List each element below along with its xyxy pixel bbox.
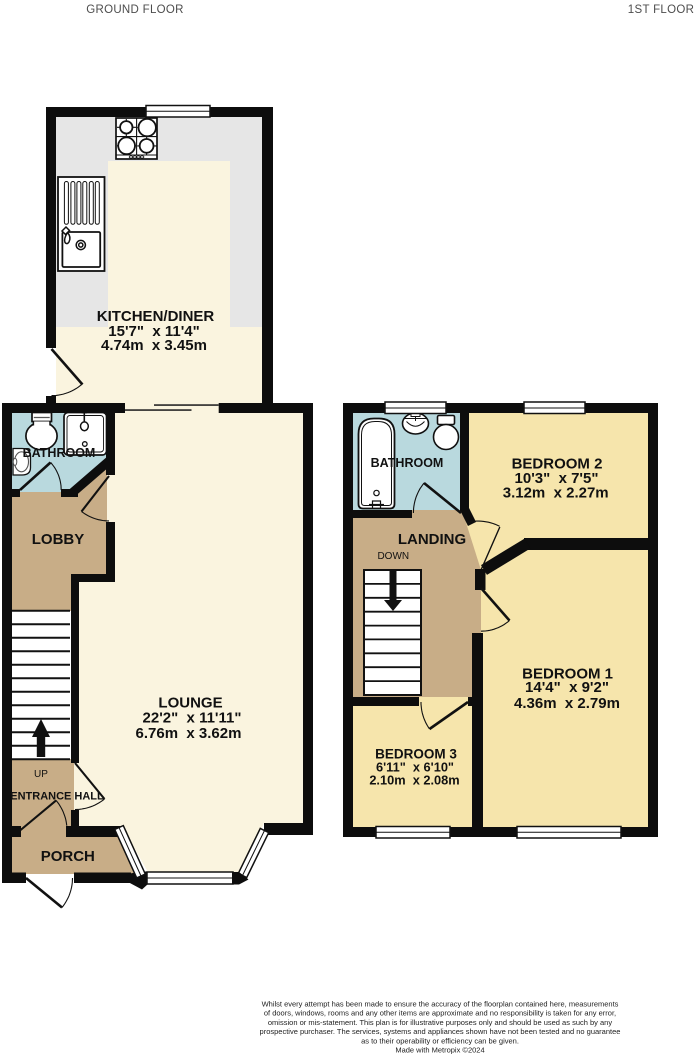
svg-text:UP: UP <box>34 769 48 780</box>
svg-text:2.10m x 2.08m: 2.10m x 2.08m <box>369 772 459 787</box>
svg-text:DOWN: DOWN <box>377 551 409 562</box>
svg-text:GROUND FLOOR: GROUND FLOOR <box>86 4 184 16</box>
svg-text:22'2" x 11'11": 22'2" x 11'11" <box>143 710 242 727</box>
svg-text:prospective purchaser. The ser: prospective purchaser. The services, sys… <box>260 1027 621 1036</box>
svg-text:as to their operability or eff: as to their operability or efficiency ca… <box>361 1036 519 1045</box>
svg-text:of doors, windows, rooms and a: of doors, windows, rooms and any other i… <box>264 1009 616 1018</box>
svg-text:Made with Metropix ©2024: Made with Metropix ©2024 <box>395 1046 484 1055</box>
svg-text:BATHROOM: BATHROOM <box>371 456 444 470</box>
svg-text:LANDING: LANDING <box>398 531 466 548</box>
svg-text:6.76m x 3.62m: 6.76m x 3.62m <box>136 725 242 742</box>
svg-text:1ST FLOOR: 1ST FLOOR <box>628 4 694 16</box>
svg-text:Whilst every attempt has been: Whilst every attempt has been made to en… <box>262 1000 619 1009</box>
svg-text:PORCH: PORCH <box>41 848 95 865</box>
svg-text:ENTRANCE HALL: ENTRANCE HALL <box>10 791 104 803</box>
svg-text:4.36m x 2.79m: 4.36m x 2.79m <box>514 695 620 712</box>
svg-text:14'4" x 9'2": 14'4" x 9'2" <box>525 679 609 696</box>
svg-text:LOBBY: LOBBY <box>32 531 85 548</box>
svg-text:omission or mis-statement. Thi: omission or mis-statement. This plan is … <box>268 1018 612 1027</box>
svg-text:4.74m x 3.45m: 4.74m x 3.45m <box>101 337 207 354</box>
svg-text:3.12m x 2.27m: 3.12m x 2.27m <box>503 485 609 502</box>
svg-text:BATHROOM: BATHROOM <box>23 446 96 460</box>
